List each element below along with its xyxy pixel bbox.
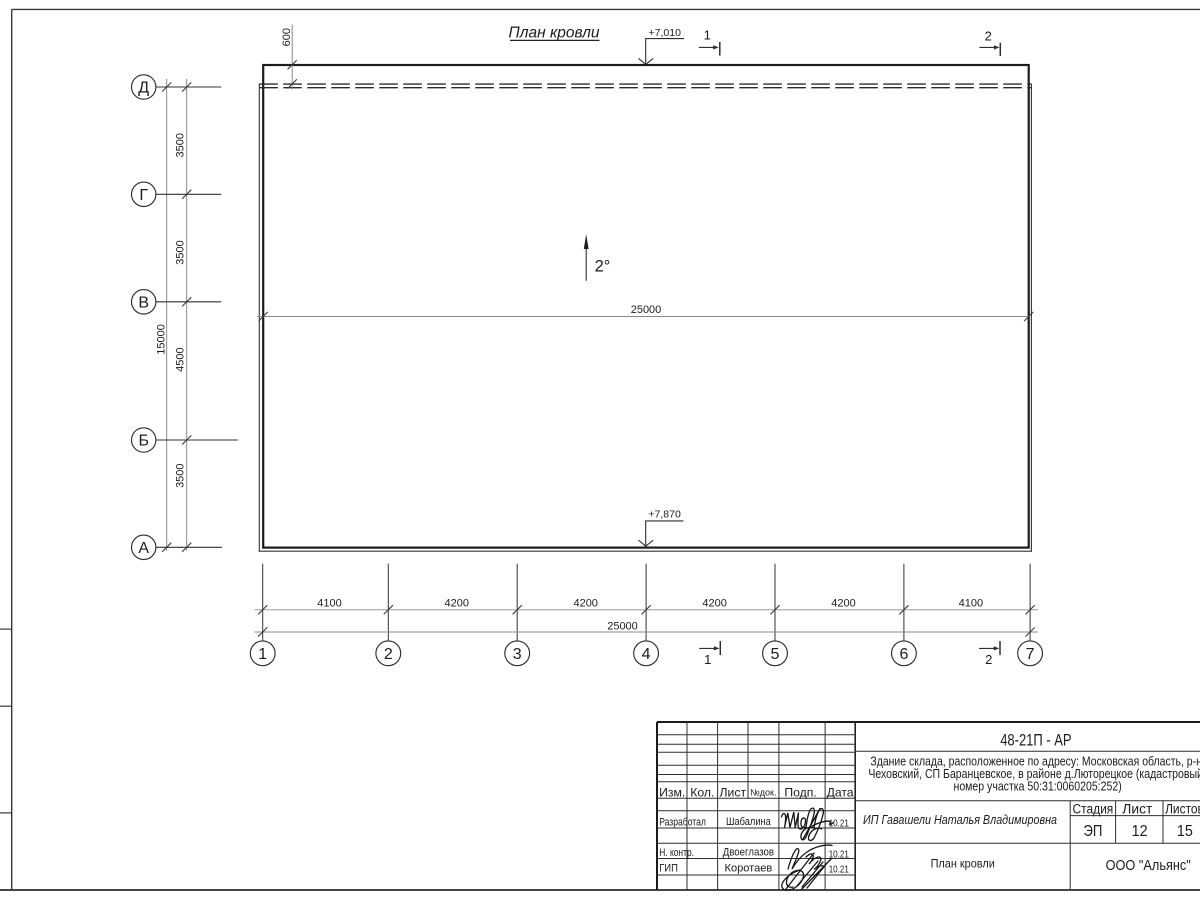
- svg-text:3500: 3500: [175, 240, 187, 264]
- svg-text:План кровли: План кровли: [509, 24, 600, 41]
- svg-text:25000: 25000: [631, 304, 662, 316]
- svg-text:3: 3: [513, 646, 522, 663]
- svg-text:4200: 4200: [702, 597, 726, 609]
- svg-text:Кол.: Кол.: [690, 785, 714, 799]
- svg-text:2°: 2°: [595, 258, 611, 276]
- svg-text:План кровли: План кровли: [931, 857, 995, 871]
- svg-text:4500: 4500: [175, 347, 187, 371]
- svg-text:4100: 4100: [317, 597, 341, 609]
- svg-text:+7,010: +7,010: [649, 27, 682, 39]
- svg-text:5: 5: [771, 646, 780, 663]
- svg-text:Б: Б: [138, 433, 149, 450]
- svg-text:15: 15: [1177, 823, 1193, 840]
- svg-text:номер участка 50:31:0060205:25: номер участка 50:31:0060205:252): [954, 779, 1122, 794]
- svg-text:Шабалина: Шабалина: [726, 816, 772, 828]
- svg-text:2: 2: [384, 646, 393, 663]
- svg-text:Лист: Лист: [1122, 802, 1152, 817]
- svg-text:Подп.: Подп.: [784, 785, 816, 799]
- svg-text:ИП Гавашели Наталья Владимиров: ИП Гавашели Наталья Владимировна: [863, 813, 1057, 827]
- svg-text:А: А: [138, 540, 149, 557]
- svg-text:10.21: 10.21: [829, 849, 849, 861]
- svg-text:4200: 4200: [445, 597, 469, 609]
- svg-text:6: 6: [899, 646, 908, 663]
- svg-text:Листов: Листов: [1165, 802, 1200, 817]
- svg-text:4: 4: [642, 646, 651, 663]
- svg-text:7: 7: [1026, 646, 1035, 663]
- svg-text:Двоеглазов: Двоеглазов: [723, 847, 774, 859]
- svg-text:Коротаев: Коротаев: [725, 862, 773, 874]
- svg-text:Д: Д: [138, 80, 149, 97]
- svg-text:25000: 25000: [607, 620, 638, 632]
- svg-text:Н. контр.: Н. контр.: [659, 847, 694, 859]
- svg-text:+7,870: +7,870: [648, 509, 681, 521]
- svg-text:Изм.: Изм.: [659, 785, 685, 799]
- svg-text:3500: 3500: [175, 133, 187, 157]
- svg-text:Стадия: Стадия: [1073, 802, 1114, 817]
- svg-text:3500: 3500: [175, 463, 187, 487]
- svg-text:Разработал: Разработал: [659, 817, 706, 829]
- svg-text:№док.: №док.: [750, 788, 776, 798]
- svg-text:4200: 4200: [831, 597, 855, 609]
- svg-text:4100: 4100: [959, 597, 983, 609]
- svg-text:15000: 15000: [155, 324, 167, 355]
- svg-text:10.21: 10.21: [829, 864, 849, 876]
- svg-text:2: 2: [985, 652, 992, 667]
- svg-text:4200: 4200: [573, 597, 597, 609]
- svg-text:Дата: Дата: [827, 785, 854, 799]
- svg-text:В: В: [138, 295, 149, 312]
- svg-text:1: 1: [704, 27, 711, 42]
- svg-text:1: 1: [704, 652, 711, 667]
- svg-text:12: 12: [1132, 823, 1148, 840]
- svg-text:Лист: Лист: [720, 785, 747, 799]
- svg-text:1: 1: [258, 646, 267, 663]
- svg-text:600: 600: [281, 28, 293, 46]
- svg-text:ООО "Альянс": ООО "Альянс": [1106, 857, 1191, 874]
- svg-text:Г: Г: [139, 187, 148, 204]
- svg-text:48-21П - АР: 48-21П - АР: [1000, 731, 1071, 750]
- svg-text:ГИП: ГИП: [659, 862, 678, 874]
- svg-text:ЭП: ЭП: [1083, 823, 1102, 840]
- svg-text:2: 2: [985, 28, 992, 43]
